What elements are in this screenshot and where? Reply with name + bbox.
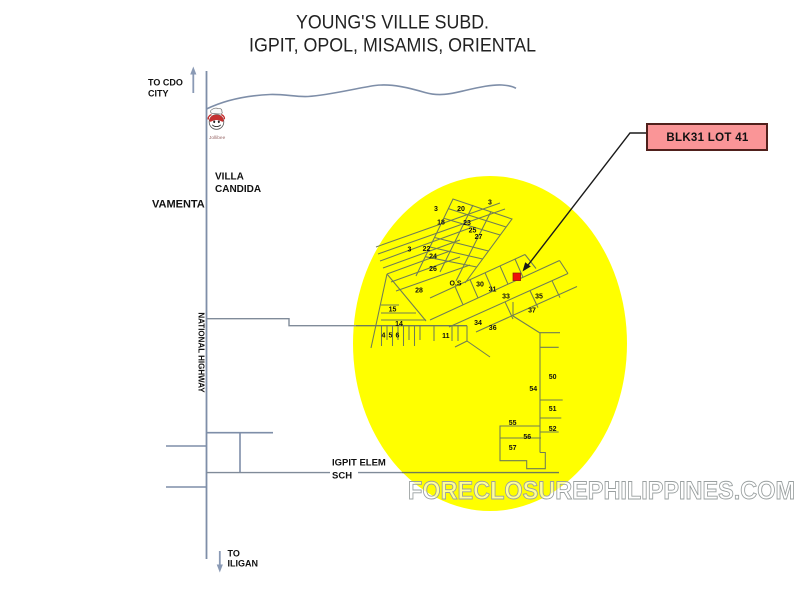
svg-text:O.S: O.S bbox=[449, 281, 461, 288]
svg-text:34: 34 bbox=[474, 320, 482, 327]
svg-text:18: 18 bbox=[437, 220, 445, 227]
svg-text:51: 51 bbox=[549, 406, 557, 413]
svg-text:27: 27 bbox=[475, 234, 483, 241]
svg-text:36: 36 bbox=[489, 325, 497, 332]
svg-text:20: 20 bbox=[457, 206, 465, 213]
svg-text:54: 54 bbox=[529, 386, 537, 393]
svg-text:56: 56 bbox=[523, 434, 531, 441]
svg-text:5: 5 bbox=[389, 332, 393, 339]
svg-text:6: 6 bbox=[396, 332, 400, 339]
svg-text:14: 14 bbox=[395, 321, 403, 328]
svg-text:FORECLOSUREPHILIPPINES.COM: FORECLOSUREPHILIPPINES.COM bbox=[408, 477, 795, 505]
svg-text:CANDIDA: CANDIDA bbox=[215, 184, 261, 195]
svg-text:YOUNG'S VILLE SUBD.: YOUNG'S VILLE SUBD. bbox=[296, 12, 489, 34]
svg-text:35: 35 bbox=[535, 294, 543, 301]
svg-text:30: 30 bbox=[476, 282, 484, 289]
svg-text:57: 57 bbox=[509, 445, 517, 452]
svg-text:31: 31 bbox=[489, 286, 497, 293]
svg-text:TO: TO bbox=[228, 549, 240, 559]
svg-text:23: 23 bbox=[463, 220, 471, 227]
svg-text:4: 4 bbox=[382, 332, 386, 339]
svg-text:26: 26 bbox=[429, 266, 437, 273]
svg-text:3: 3 bbox=[408, 247, 412, 254]
svg-text:SCH: SCH bbox=[332, 471, 352, 482]
svg-text:NATIONAL HIGHWAY: NATIONAL HIGHWAY bbox=[197, 312, 206, 393]
svg-text:VILLA: VILLA bbox=[215, 172, 244, 183]
svg-text:ILIGAN: ILIGAN bbox=[228, 559, 259, 569]
svg-text:37: 37 bbox=[528, 307, 536, 314]
svg-text:33: 33 bbox=[502, 294, 510, 301]
svg-text:3: 3 bbox=[488, 200, 492, 207]
svg-text:50: 50 bbox=[549, 374, 557, 381]
svg-text:15: 15 bbox=[389, 307, 397, 314]
svg-text:3: 3 bbox=[434, 206, 438, 213]
svg-text:CITY: CITY bbox=[148, 89, 169, 99]
svg-text:52: 52 bbox=[549, 426, 557, 433]
svg-text:BLK31 LOT 41: BLK31 LOT 41 bbox=[666, 132, 749, 144]
svg-text:Jollibee: Jollibee bbox=[209, 135, 226, 141]
svg-text:IGPIT, OPOL, MISAMIS, ORIENTAL: IGPIT, OPOL, MISAMIS, ORIENTAL bbox=[249, 35, 536, 57]
svg-text:IGPIT ELEM: IGPIT ELEM bbox=[332, 458, 386, 469]
svg-text:28: 28 bbox=[415, 287, 423, 294]
svg-text:VAMENTA: VAMENTA bbox=[152, 199, 205, 211]
svg-text:24: 24 bbox=[429, 254, 437, 261]
svg-text:TO CDO: TO CDO bbox=[148, 78, 183, 88]
svg-text:55: 55 bbox=[509, 420, 517, 427]
svg-text:22: 22 bbox=[423, 246, 431, 253]
svg-text:11: 11 bbox=[442, 333, 450, 340]
